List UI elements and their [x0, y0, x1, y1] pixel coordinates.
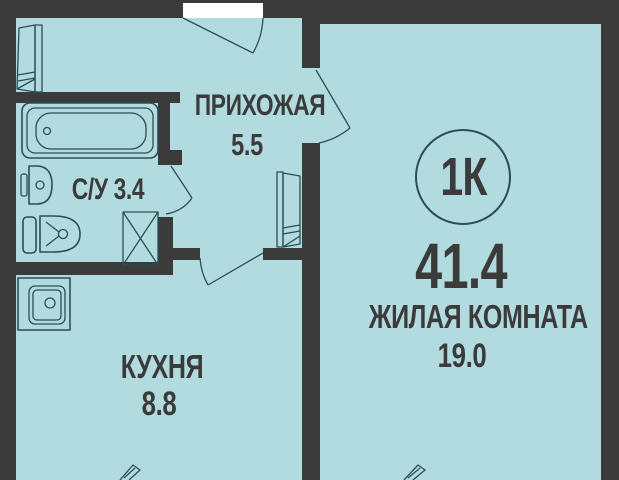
bathroom-wall-stub [158, 150, 182, 165]
bathroom-label: С/У 3.4 [55, 175, 161, 205]
bathroom-top-wall [16, 92, 180, 103]
kitchen-top-wall [16, 262, 173, 275]
floor-plan: ПРИХОЖАЯ 5.5 С/У 3.4 КУХНЯ 8.8 1К 41.4 Ж… [0, 0, 619, 480]
hallway-name-label: ПРИХОЖАЯ [195, 91, 301, 121]
kitchen-name-label: КУХНЯ [109, 350, 215, 383]
hallway-area-label: 5.5 [209, 129, 285, 160]
apartment-type-label: 1К [440, 150, 486, 204]
living-room-area-label: 19.0 [386, 339, 538, 373]
entrance-door-opening [183, 3, 263, 18]
kitchen-door-stub-right [263, 248, 302, 260]
kitchen-area-label: 8.8 [121, 387, 197, 421]
apartment-type-badge: 1К [415, 129, 511, 225]
bathroom-area-label: 3.4 [114, 173, 145, 206]
kitchen-door-stub-left [173, 248, 200, 260]
bathroom-name-label: С/У [72, 173, 108, 206]
total-area-label: 41.4 [385, 234, 537, 298]
living-room-name-label: ЖИЛАЯ КОМНАТА [369, 300, 551, 333]
